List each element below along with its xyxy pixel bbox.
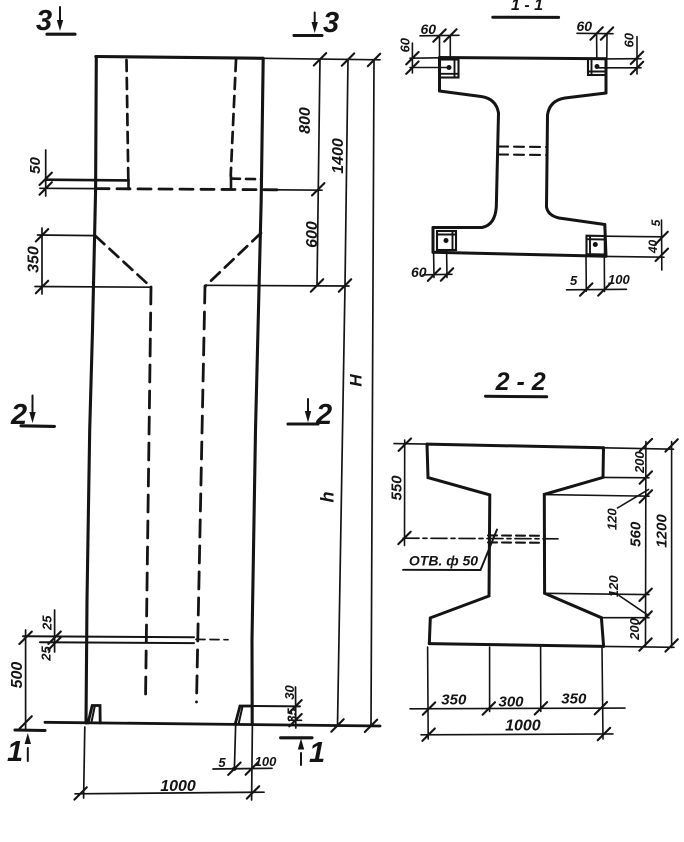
svg-text:60: 60 [622,32,637,47]
svg-text:1200: 1200 [654,514,671,548]
svg-text:60: 60 [577,18,593,34]
svg-text:350: 350 [441,692,467,709]
svg-text:5: 5 [649,219,663,226]
svg-text:800: 800 [297,107,314,134]
svg-text:300: 300 [498,694,524,711]
svg-text:100: 100 [255,754,277,769]
svg-text:1: 1 [7,736,23,768]
svg-text:120: 120 [604,508,619,530]
svg-text:1 - 1: 1 - 1 [511,0,543,14]
svg-text:500: 500 [9,662,26,689]
svg-text:50: 50 [27,157,44,174]
svg-text:200: 200 [632,451,647,474]
svg-text:2: 2 [10,399,27,431]
svg-text:60: 60 [411,264,427,280]
svg-text:60: 60 [397,37,412,52]
svg-text:560: 560 [627,521,644,547]
svg-text:3: 3 [323,7,339,39]
svg-text:H: H [347,374,366,387]
svg-text:40: 40 [646,240,660,255]
svg-text:3: 3 [36,5,52,37]
svg-text:5: 5 [218,755,226,770]
svg-text:550: 550 [388,475,405,501]
svg-text:2 - 2: 2 - 2 [495,368,546,396]
svg-text:100: 100 [608,272,630,287]
svg-text:120: 120 [606,575,621,597]
svg-text:1000: 1000 [160,778,196,795]
svg-text:200: 200 [627,617,642,640]
svg-text:25: 25 [40,615,55,631]
svg-text:30: 30 [282,685,297,700]
svg-text:h: h [318,492,338,503]
svg-text:1000: 1000 [505,718,541,735]
svg-text:350: 350 [561,691,587,708]
svg-text:5: 5 [570,273,578,288]
svg-text:2: 2 [315,399,332,431]
svg-text:25: 25 [38,646,53,662]
svg-text:1: 1 [309,737,325,769]
svg-text:35: 35 [285,708,300,723]
svg-text:350: 350 [26,246,43,273]
svg-text:600: 600 [304,221,321,248]
svg-text:60: 60 [421,21,437,37]
svg-text:ОТВ. ф 50: ОТВ. ф 50 [409,553,478,569]
svg-text:1400: 1400 [330,138,347,174]
